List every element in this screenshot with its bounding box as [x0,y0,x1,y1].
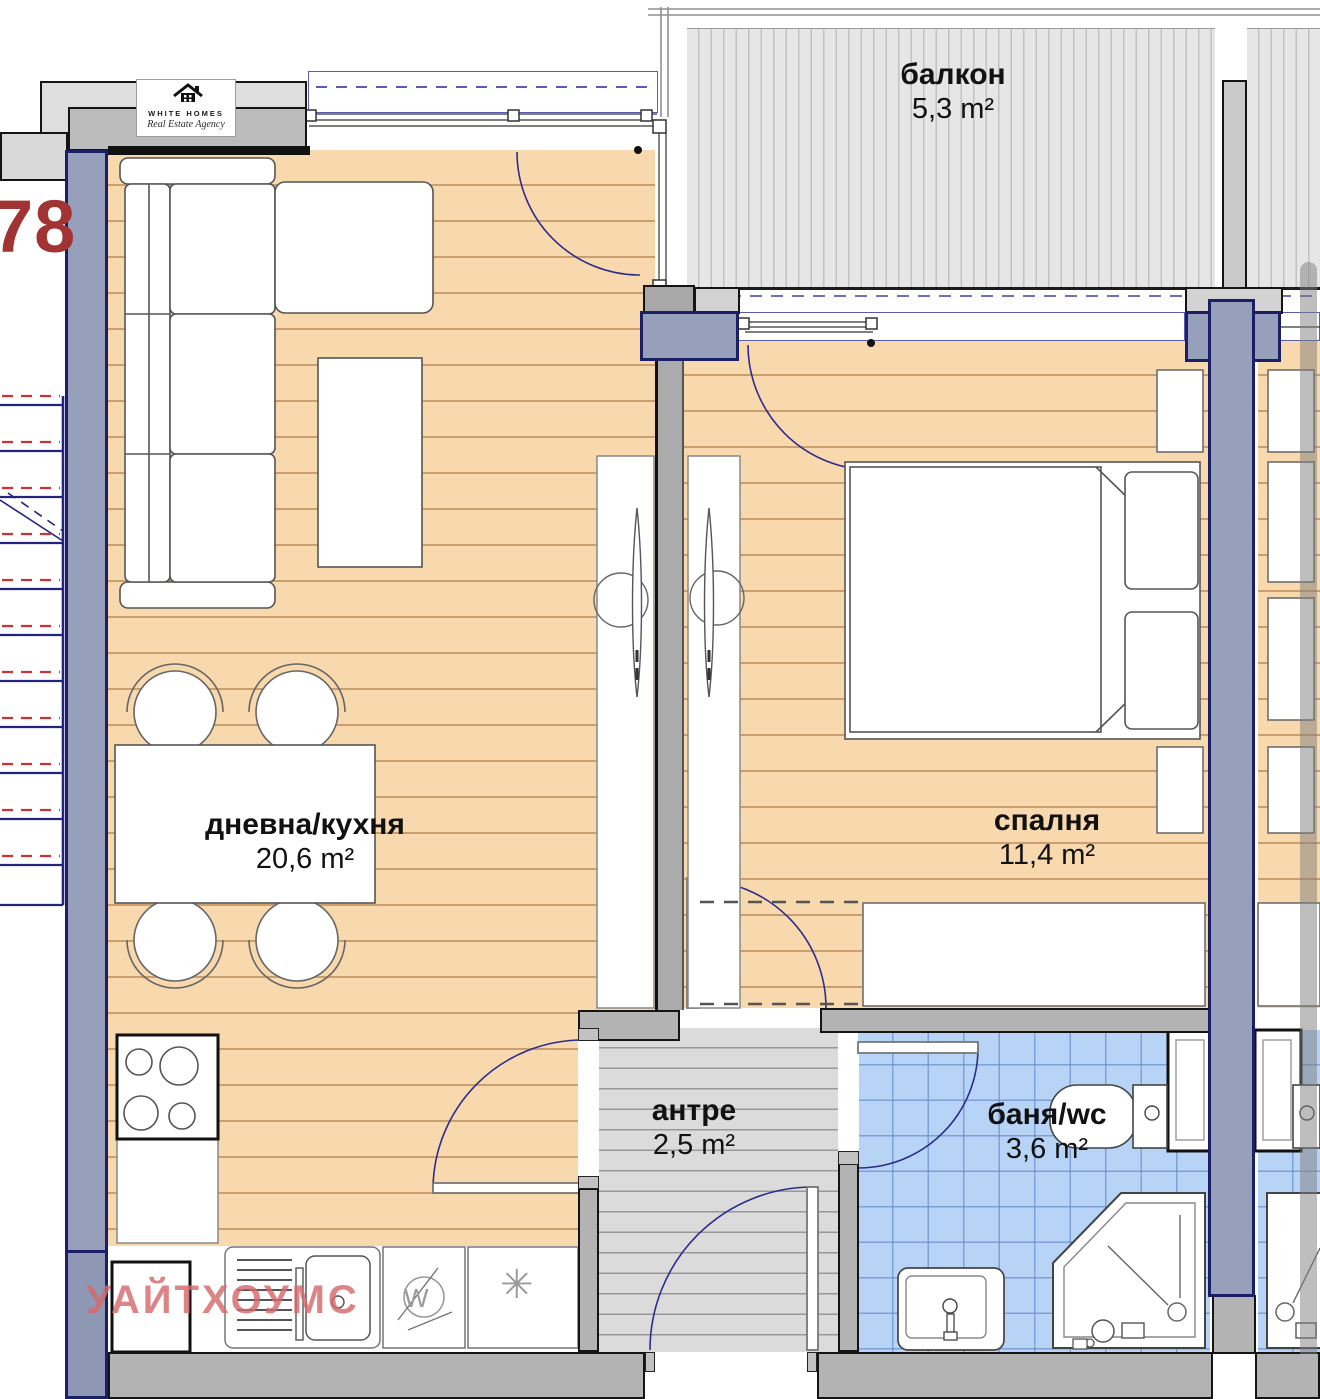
bath-door-jamb [838,1151,859,1165]
center-structural-column [640,311,739,361]
living-area: 20,6 m² [190,842,420,876]
balcony-divider-wall [1222,80,1247,290]
staircase [0,396,63,905]
balcony-name: балкон [868,58,1038,92]
bedroom-name: спалня [932,804,1162,838]
living-label: дневна/кухня 20,6 m² [190,808,420,876]
left-structural-column-bottom [65,1250,108,1399]
living-top-wall [108,146,310,155]
party-wall-notch [1212,1295,1256,1354]
agency-watermark: УАЙТХОУМС [86,1278,416,1323]
center-partition-wall [655,358,684,1010]
bath-label: баня/wc 3,6 m² [958,1098,1136,1166]
bottom-wall-neighbor [1255,1352,1320,1399]
hall-area: 2,5 m² [608,1128,780,1162]
hallway-floor [597,1028,838,1352]
bedroom-window-band [737,312,1185,341]
logo-title: WHITE HOMES [137,109,235,118]
living-name: дневна/кухня [190,808,420,842]
balcony-area: 5,3 m² [868,92,1038,126]
floor-plan: балкон 5,3 m² дневна/кухня 20,6 m² спалн… [0,0,1320,1399]
bath-name: баня/wc [958,1098,1136,1132]
entry-jamb-left [645,1352,655,1372]
balcony-label: балкон 5,3 m² [868,58,1038,126]
bedroom-label: спалня 11,4 m² [932,804,1162,872]
living-window-band [308,71,658,113]
agency-logo: WHITE HOMES Real Estate Agency [136,79,236,137]
hall-door-jamb-top [578,1028,599,1041]
living-room-floor [108,150,655,1246]
unit-number: 78 [0,184,76,269]
entry-jamb-right [807,1352,817,1372]
bathroom-floor [858,1030,1210,1352]
bath-area: 3,6 m² [958,1132,1136,1166]
logo-tagline: Real Estate Agency [137,119,235,130]
hall-left-wall [578,1188,599,1352]
column-cap-right [694,287,740,314]
bedroom-floor [683,340,1208,1008]
bath-door-threshold [838,1042,859,1151]
hall-door-jamb-bottom [578,1176,599,1189]
bottom-wall-right [817,1352,1213,1399]
exterior-step-wall-c [0,132,68,181]
hall-label: антре 2,5 m² [608,1094,780,1162]
dishwasher-symbol: ✳ [500,1262,534,1308]
highlight-band [1300,262,1317,1354]
left-structural-wall [65,150,108,1254]
hall-door-threshold [578,1041,599,1176]
neighbor-balcony-deck [1247,28,1320,290]
bedroom-bath-wall [820,1008,1212,1033]
bottom-wall-left [108,1352,645,1399]
hall-name: антре [608,1094,780,1128]
party-structural-wall [1208,299,1255,1297]
bedroom-area: 11,4 m² [932,838,1162,872]
hall-bath-wall [838,1163,859,1352]
column-cap-left [643,285,695,314]
house-icon [164,82,208,104]
